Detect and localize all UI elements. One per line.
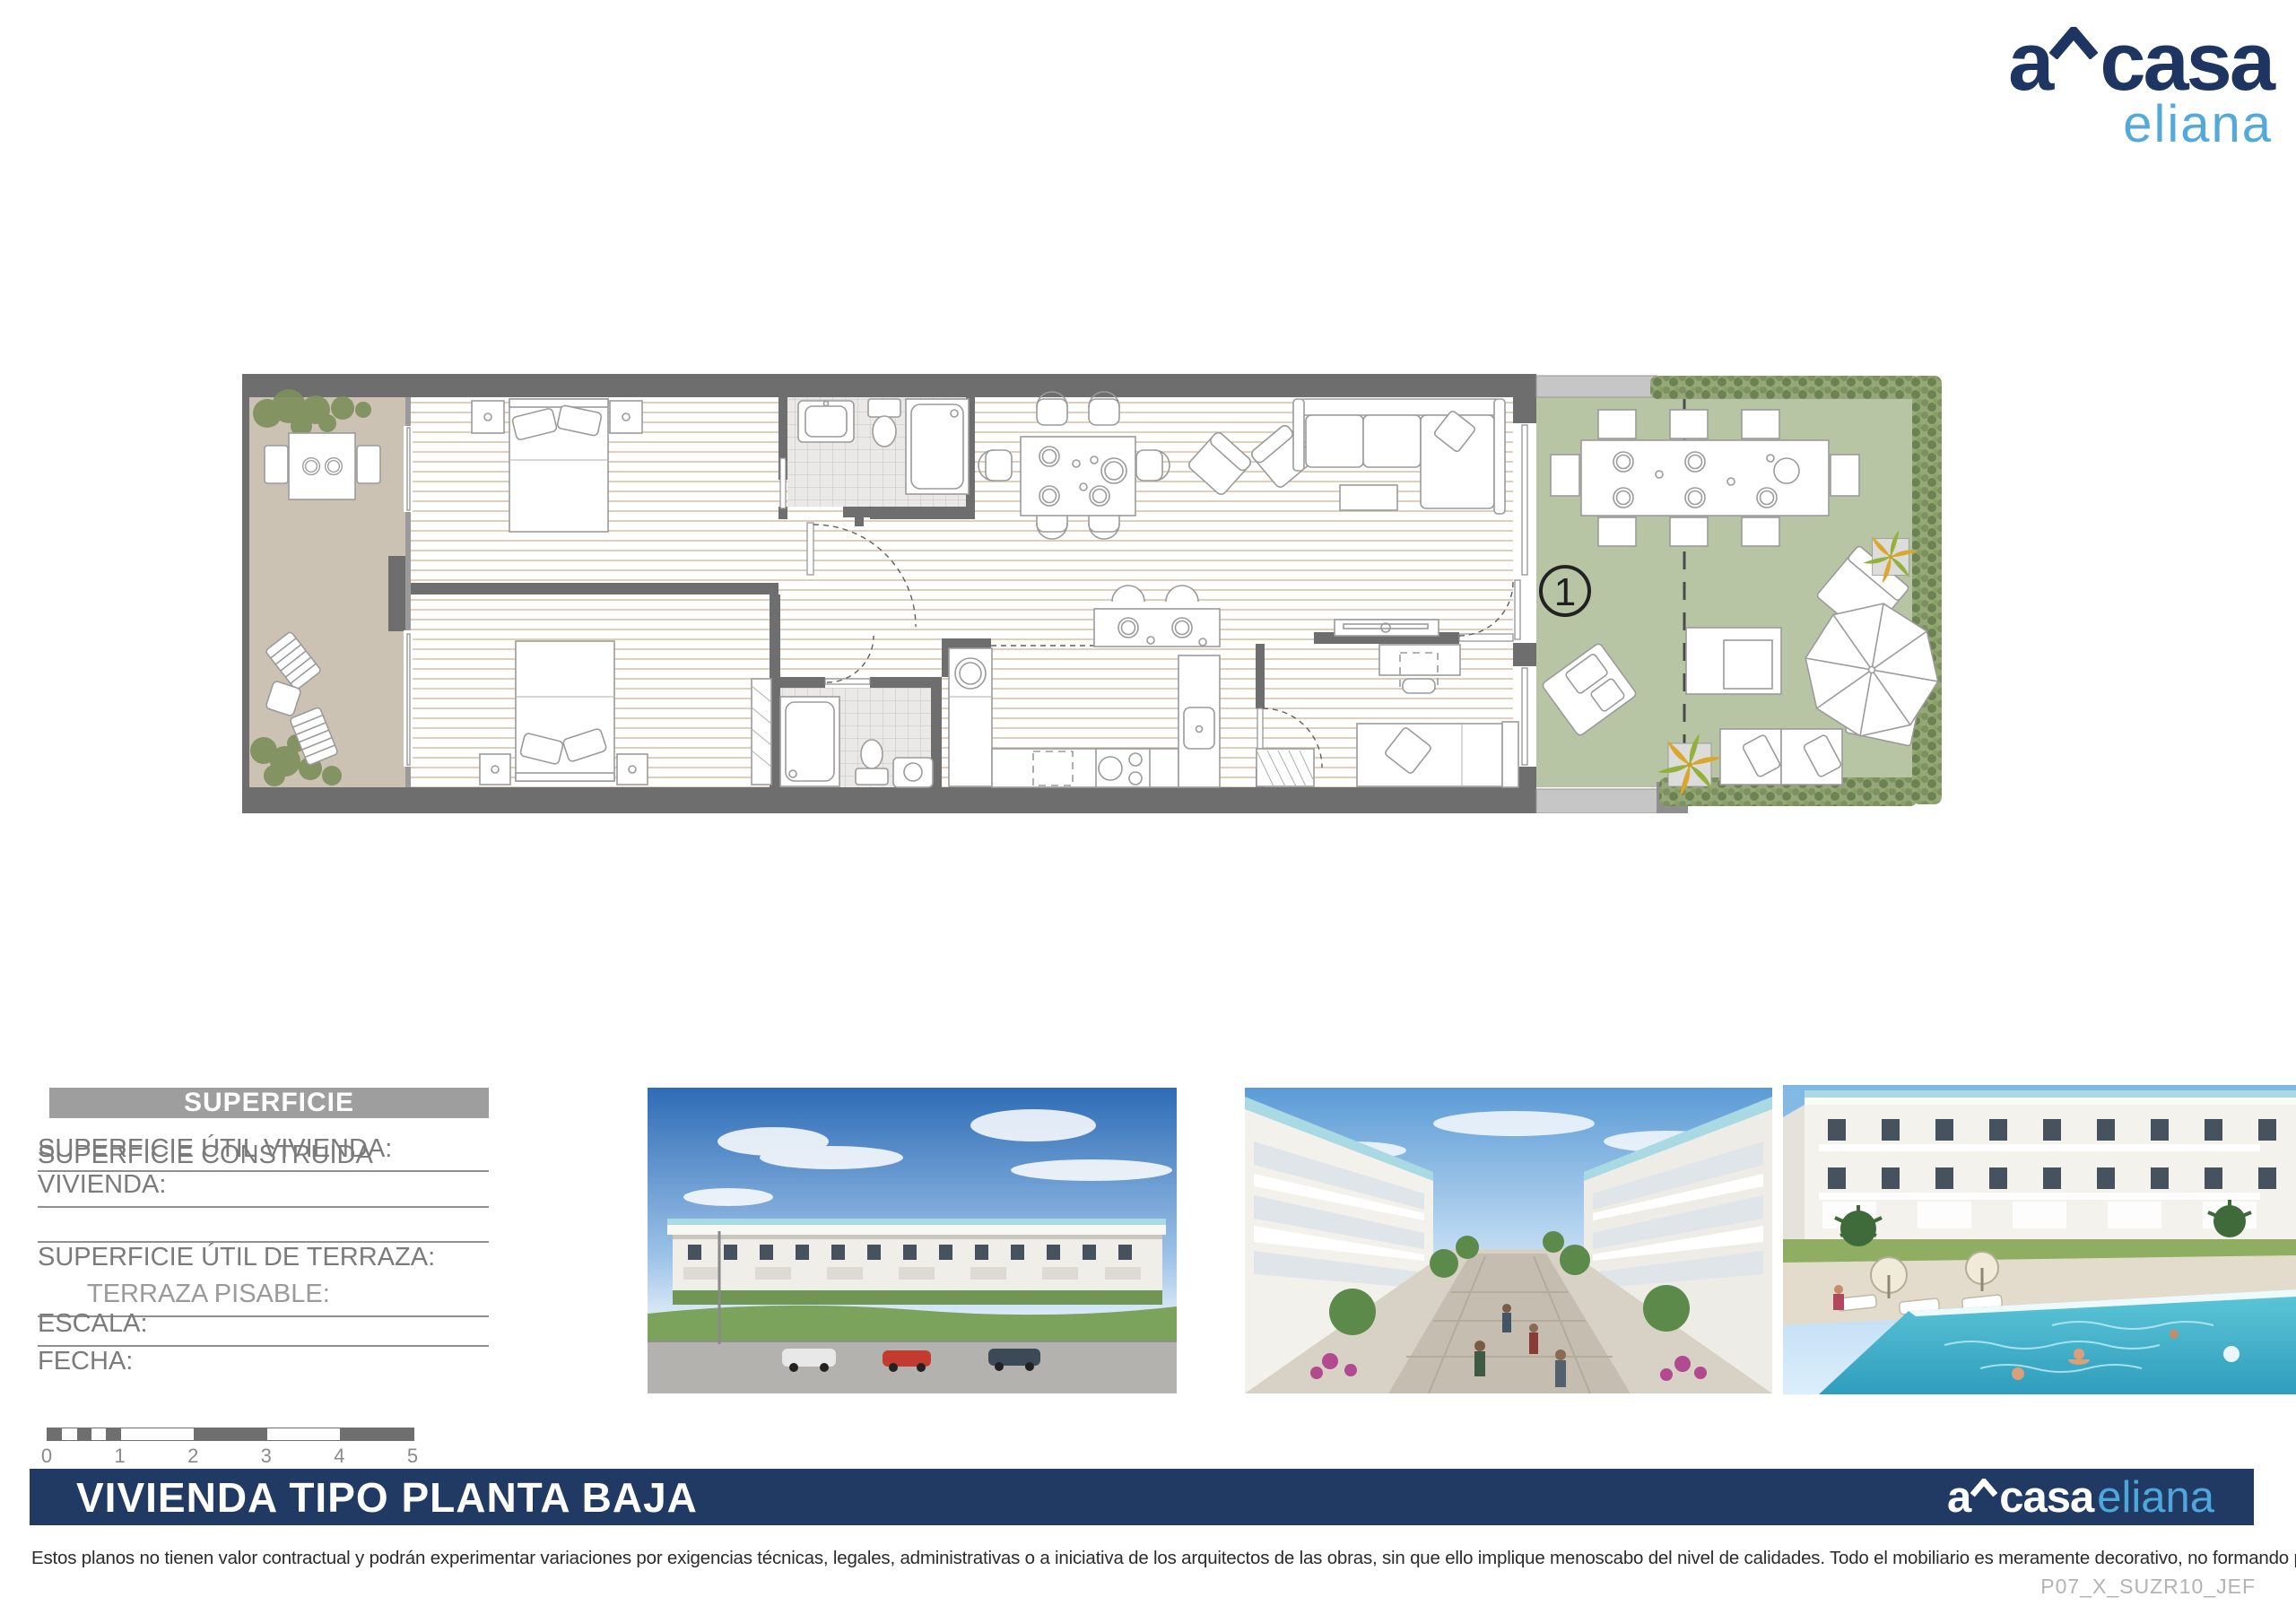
title-bar: VIVIENDA TIPO PLANTA BAJA a casa eliana	[30, 1469, 2254, 1525]
document-code: P07_X_SUZR10_JEF	[2040, 1575, 2256, 1599]
brand-sub: eliana	[2097, 1480, 2214, 1515]
surface-row: SUPERFICIE ÚTIL DE TERRAZA:	[38, 1243, 489, 1279]
scale-bar: 0 1 2 3 4 5	[47, 1428, 423, 1468]
brand-logo-top: a casa eliana	[2008, 27, 2273, 151]
brand-wordmark: a casa	[2008, 27, 2273, 95]
brand-main: casa	[2100, 30, 2273, 95]
roof-caret-icon	[1970, 1479, 1997, 1497]
unit-number: 1	[1554, 570, 1576, 614]
brand-main: casa	[1999, 1480, 2093, 1515]
brand-prefix: a	[2008, 30, 2051, 95]
scale-bar-ticks: 0 1 2 3 4 5	[47, 1445, 423, 1468]
brand-prefix: a	[1947, 1480, 1970, 1515]
surface-row: SUPERFICIE CONSTRUIDA VIVIENDA:	[38, 1172, 489, 1208]
brand-sub: eliana	[2123, 99, 2273, 151]
surface-panel: SUPERFICIE ÚTIL VIVIENDA: SUPERFICIE CON…	[38, 1118, 489, 1383]
garden-top-band	[1536, 376, 1657, 397]
plan-sheet: a casa eliana	[0, 0, 2296, 1623]
sheet-title: VIVIENDA TIPO PLANTA BAJA	[76, 1473, 698, 1522]
right-wall-windows	[1513, 423, 1536, 767]
surface-panel-title: SUPERFICIE	[49, 1088, 489, 1118]
legal-disclaimer: Estos planos no tienen valor contractual…	[31, 1548, 2296, 1569]
surface-row: ESCALA:	[38, 1317, 489, 1347]
render-photo-exterior	[648, 1088, 1177, 1393]
floor-plan: 1	[242, 374, 2000, 813]
surface-row-spacer	[38, 1208, 489, 1243]
surface-row: FECHA:	[38, 1347, 489, 1383]
render-photo-courtyard	[1245, 1088, 1772, 1393]
render-photo-pool	[1783, 1085, 2296, 1394]
brand-logo-bottom: a casa eliana	[1947, 1479, 2214, 1516]
garden-bottom-band	[1536, 789, 1659, 813]
roof-caret-icon	[2049, 27, 2098, 59]
scale-bar-blocks	[47, 1428, 414, 1441]
